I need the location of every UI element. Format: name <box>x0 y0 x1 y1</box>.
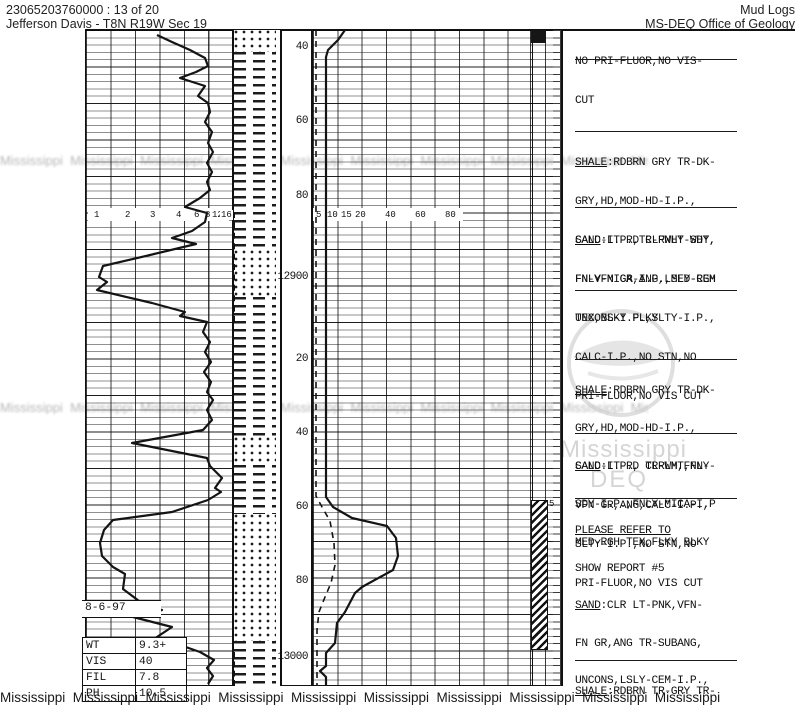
offscale-curve-mark <box>233 212 235 322</box>
lith-keyword: SAND <box>575 235 601 247</box>
note-line: SAND:LT-RD CLRWHT WHT, <box>575 235 743 250</box>
show-bar-top <box>531 30 546 43</box>
table-row: FIL 7.8 <box>83 670 187 686</box>
lithology-shale-band <box>234 52 276 250</box>
note-line-rest: :RDBRN GRY TR-DK- <box>607 157 715 169</box>
block-separator <box>575 433 737 434</box>
block-separator <box>575 359 737 360</box>
note-line: CUT <box>575 95 743 110</box>
scale-tick: 20 <box>354 210 367 220</box>
scale-tick: 10 <box>326 210 339 220</box>
offscale-curve-mark <box>233 652 235 686</box>
bottom-watermark-row: Mississippi Mississippi Mississippi Miss… <box>0 690 800 705</box>
mud-wt-value: 9.3+ <box>136 638 187 654</box>
scale-tick: 2 <box>124 210 131 220</box>
note-line: SAND:LT-RD CLRWHT,FN- <box>575 461 743 476</box>
document-id: 23065203760000 : 13 of 20 <box>6 3 159 17</box>
scale-tick: 15 <box>340 210 353 220</box>
mud-fil-value: 7.8 <box>136 670 187 686</box>
note-line-rest: :CLR LT-PNK,VFN- <box>601 600 703 612</box>
lithology-shale-band <box>234 641 276 686</box>
mud-fil-label: FIL <box>83 670 136 686</box>
scale-tick: 16 <box>220 210 233 220</box>
scale-tick: 60 <box>414 210 427 220</box>
depth-label: 80 <box>266 190 308 202</box>
note-line: SAND:CLR LT-PNK,VFN- <box>575 600 743 614</box>
scale-tick: 1 <box>93 210 100 220</box>
mud-log-page: Mississippi Mississippi Mississippi Miss… <box>0 0 800 705</box>
depth-label: 13000 <box>266 651 308 663</box>
depth-label: 40 <box>266 41 308 53</box>
note-line: PLEASE REFER TO <box>575 525 743 539</box>
block-separator <box>575 131 737 132</box>
show-bar <box>531 500 548 650</box>
scale-tick: 6 <box>193 210 200 220</box>
text-column-border <box>561 30 563 686</box>
depth-label: 20 <box>266 353 308 365</box>
mud-wt-label: WT <box>83 638 136 654</box>
lith-keyword: SHALE <box>575 157 607 169</box>
note-line: UNCONS-I.P.,SLTY-I.P., <box>575 313 743 328</box>
table-row: WT 9.3+ <box>83 638 187 654</box>
note-line: SHALE:RDBRN GRY TR-DK- <box>575 385 743 399</box>
depth-label: 80 <box>266 575 308 587</box>
note-line: FN GR,ANG TR-SUBANG, <box>575 638 743 652</box>
note-line: SHALE:RDBRN GRY TR-DK- <box>575 157 743 172</box>
depth-label: 12900 <box>266 271 308 283</box>
scale-tick: 4 <box>175 210 182 220</box>
note-line-rest: :LT-RD CLRWHT WHT, <box>601 235 716 247</box>
table-row: VIS 40 <box>83 654 187 670</box>
note-line: GRY,HD,MOD-HD-I.P., <box>575 196 743 211</box>
block-separator <box>575 290 737 291</box>
lithology-shale-band <box>234 297 276 437</box>
block-separator <box>575 207 737 208</box>
mud-check-date: 8-6-97 <box>82 600 161 618</box>
lith-keyword: SHALE <box>575 385 607 397</box>
resistivity-track-grid <box>85 30 233 686</box>
scale-tick: 3 <box>149 210 156 220</box>
scale-tick: 5 <box>315 210 322 220</box>
mud-vis-value: 40 <box>136 654 187 670</box>
note-line-rest: :RDBRN GRY TR-DK- <box>607 385 715 397</box>
lithology-sand-band <box>234 437 276 465</box>
block-separator <box>575 498 737 499</box>
note-line-rest: :LT-RD CLRWHT,FN- <box>601 461 709 473</box>
block-separator <box>575 660 737 661</box>
page-title: Mud Logs <box>740 3 795 17</box>
note-line: SHOW REPORT #5 <box>575 563 743 577</box>
depth-label: 60 <box>266 115 308 127</box>
depth-label: 60 <box>266 501 308 513</box>
note-line: FN-VFN GR,ANG,LSLY-CEM <box>575 274 743 289</box>
note-line: GRY,HD,MOD-HD-I.P., <box>575 423 743 437</box>
scale-tick: 80 <box>444 210 457 220</box>
block-separator <box>575 59 737 60</box>
depth-label: 40 <box>266 427 308 439</box>
mud-vis-label: VIS <box>83 654 136 670</box>
gas-track-grid <box>311 30 533 686</box>
lith-keyword: SAND <box>575 461 601 473</box>
sample-note-block: NO PRI-FLUOR,NO VIS- CUT <box>575 32 743 134</box>
lith-keyword: SAND <box>575 600 601 612</box>
scale-tick: 40 <box>384 210 397 220</box>
